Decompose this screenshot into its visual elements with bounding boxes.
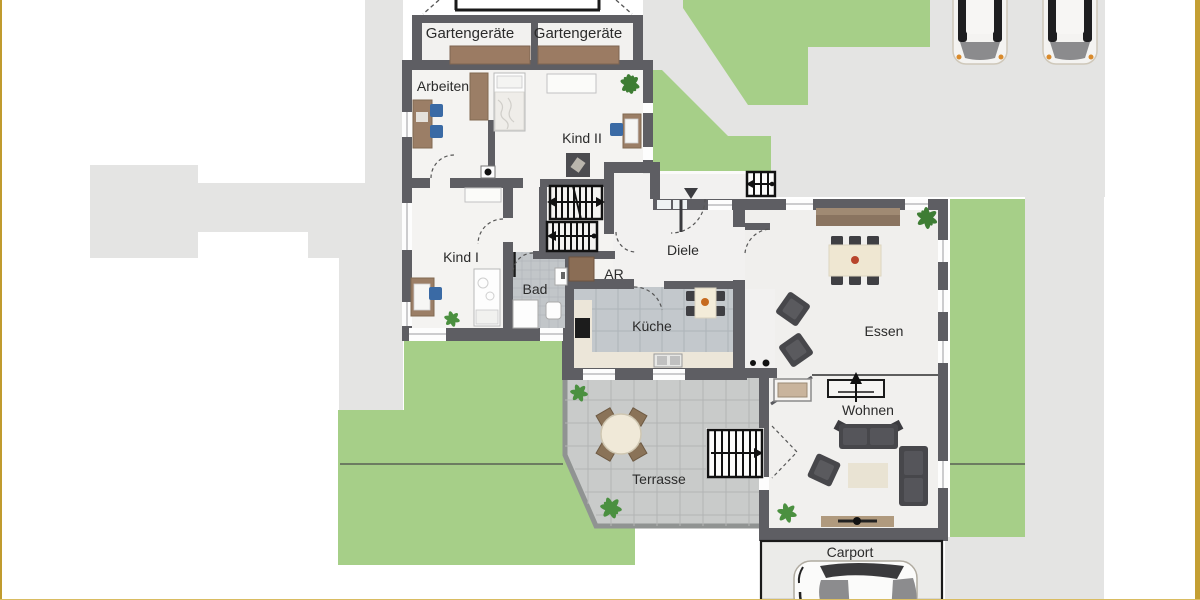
svg-text:Gartengeräte: Gartengeräte [534,25,622,42]
svg-text:Terrasse: Terrasse [632,471,686,487]
svg-text:Carport: Carport [827,544,874,560]
svg-text:Essen: Essen [865,323,904,339]
svg-text:Kind II: Kind II [562,130,602,146]
svg-text:Küche: Küche [632,318,672,334]
svg-text:Bad: Bad [523,281,548,297]
svg-text:Diele: Diele [667,242,699,258]
svg-text:Gartengeräte: Gartengeräte [426,25,514,42]
svg-text:Arbeiten: Arbeiten [417,78,469,94]
svg-text:Kind I: Kind I [443,249,479,265]
svg-text:AR: AR [604,266,623,282]
svg-text:Wohnen: Wohnen [842,402,894,418]
